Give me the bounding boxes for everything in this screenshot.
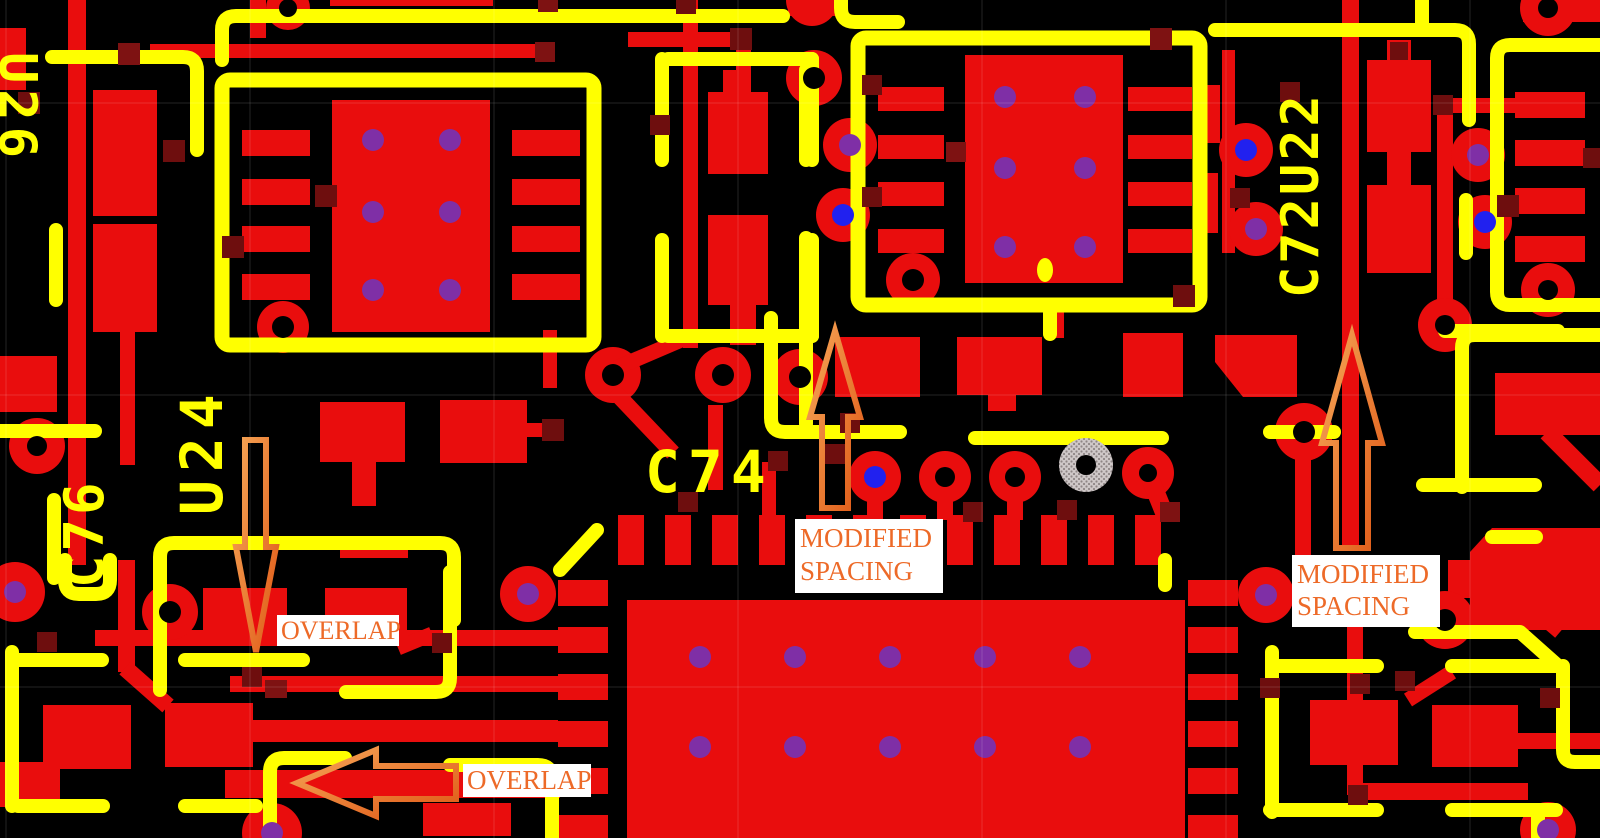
refdes-u26: U26 [0,52,47,164]
refdes-c76: C76 [53,478,116,588]
pcb-canvas[interactable]: U26 C76 U24 C74 C72U22 MODIFIED SPACING … [0,0,1600,838]
annotation-text: OVERLAP [467,765,592,795]
annotation-label-modified-spacing-center: MODIFIED SPACING [795,519,943,593]
refdes-c74: C74 [645,438,774,506]
pcb-layout: U26 C76 U24 C74 C72U22 MODIFIED SPACING … [0,0,1600,838]
annotation-text: MODIFIED [1297,559,1429,589]
annotation-label-overlap-lower: OVERLAP [463,764,592,797]
refdes-c72-u22: C72U22 [1271,92,1331,298]
annotation-text: OVERLAP [281,616,401,645]
annotation-label-overlap-upper: OVERLAP [277,615,401,646]
annotation-text: MODIFIED [800,523,932,553]
annotation-label-modified-spacing-right: MODIFIED SPACING [1292,555,1440,627]
annotation-text: SPACING [1297,591,1410,621]
annotation-text: SPACING [800,556,913,586]
refdes-u24: U24 [168,386,236,515]
